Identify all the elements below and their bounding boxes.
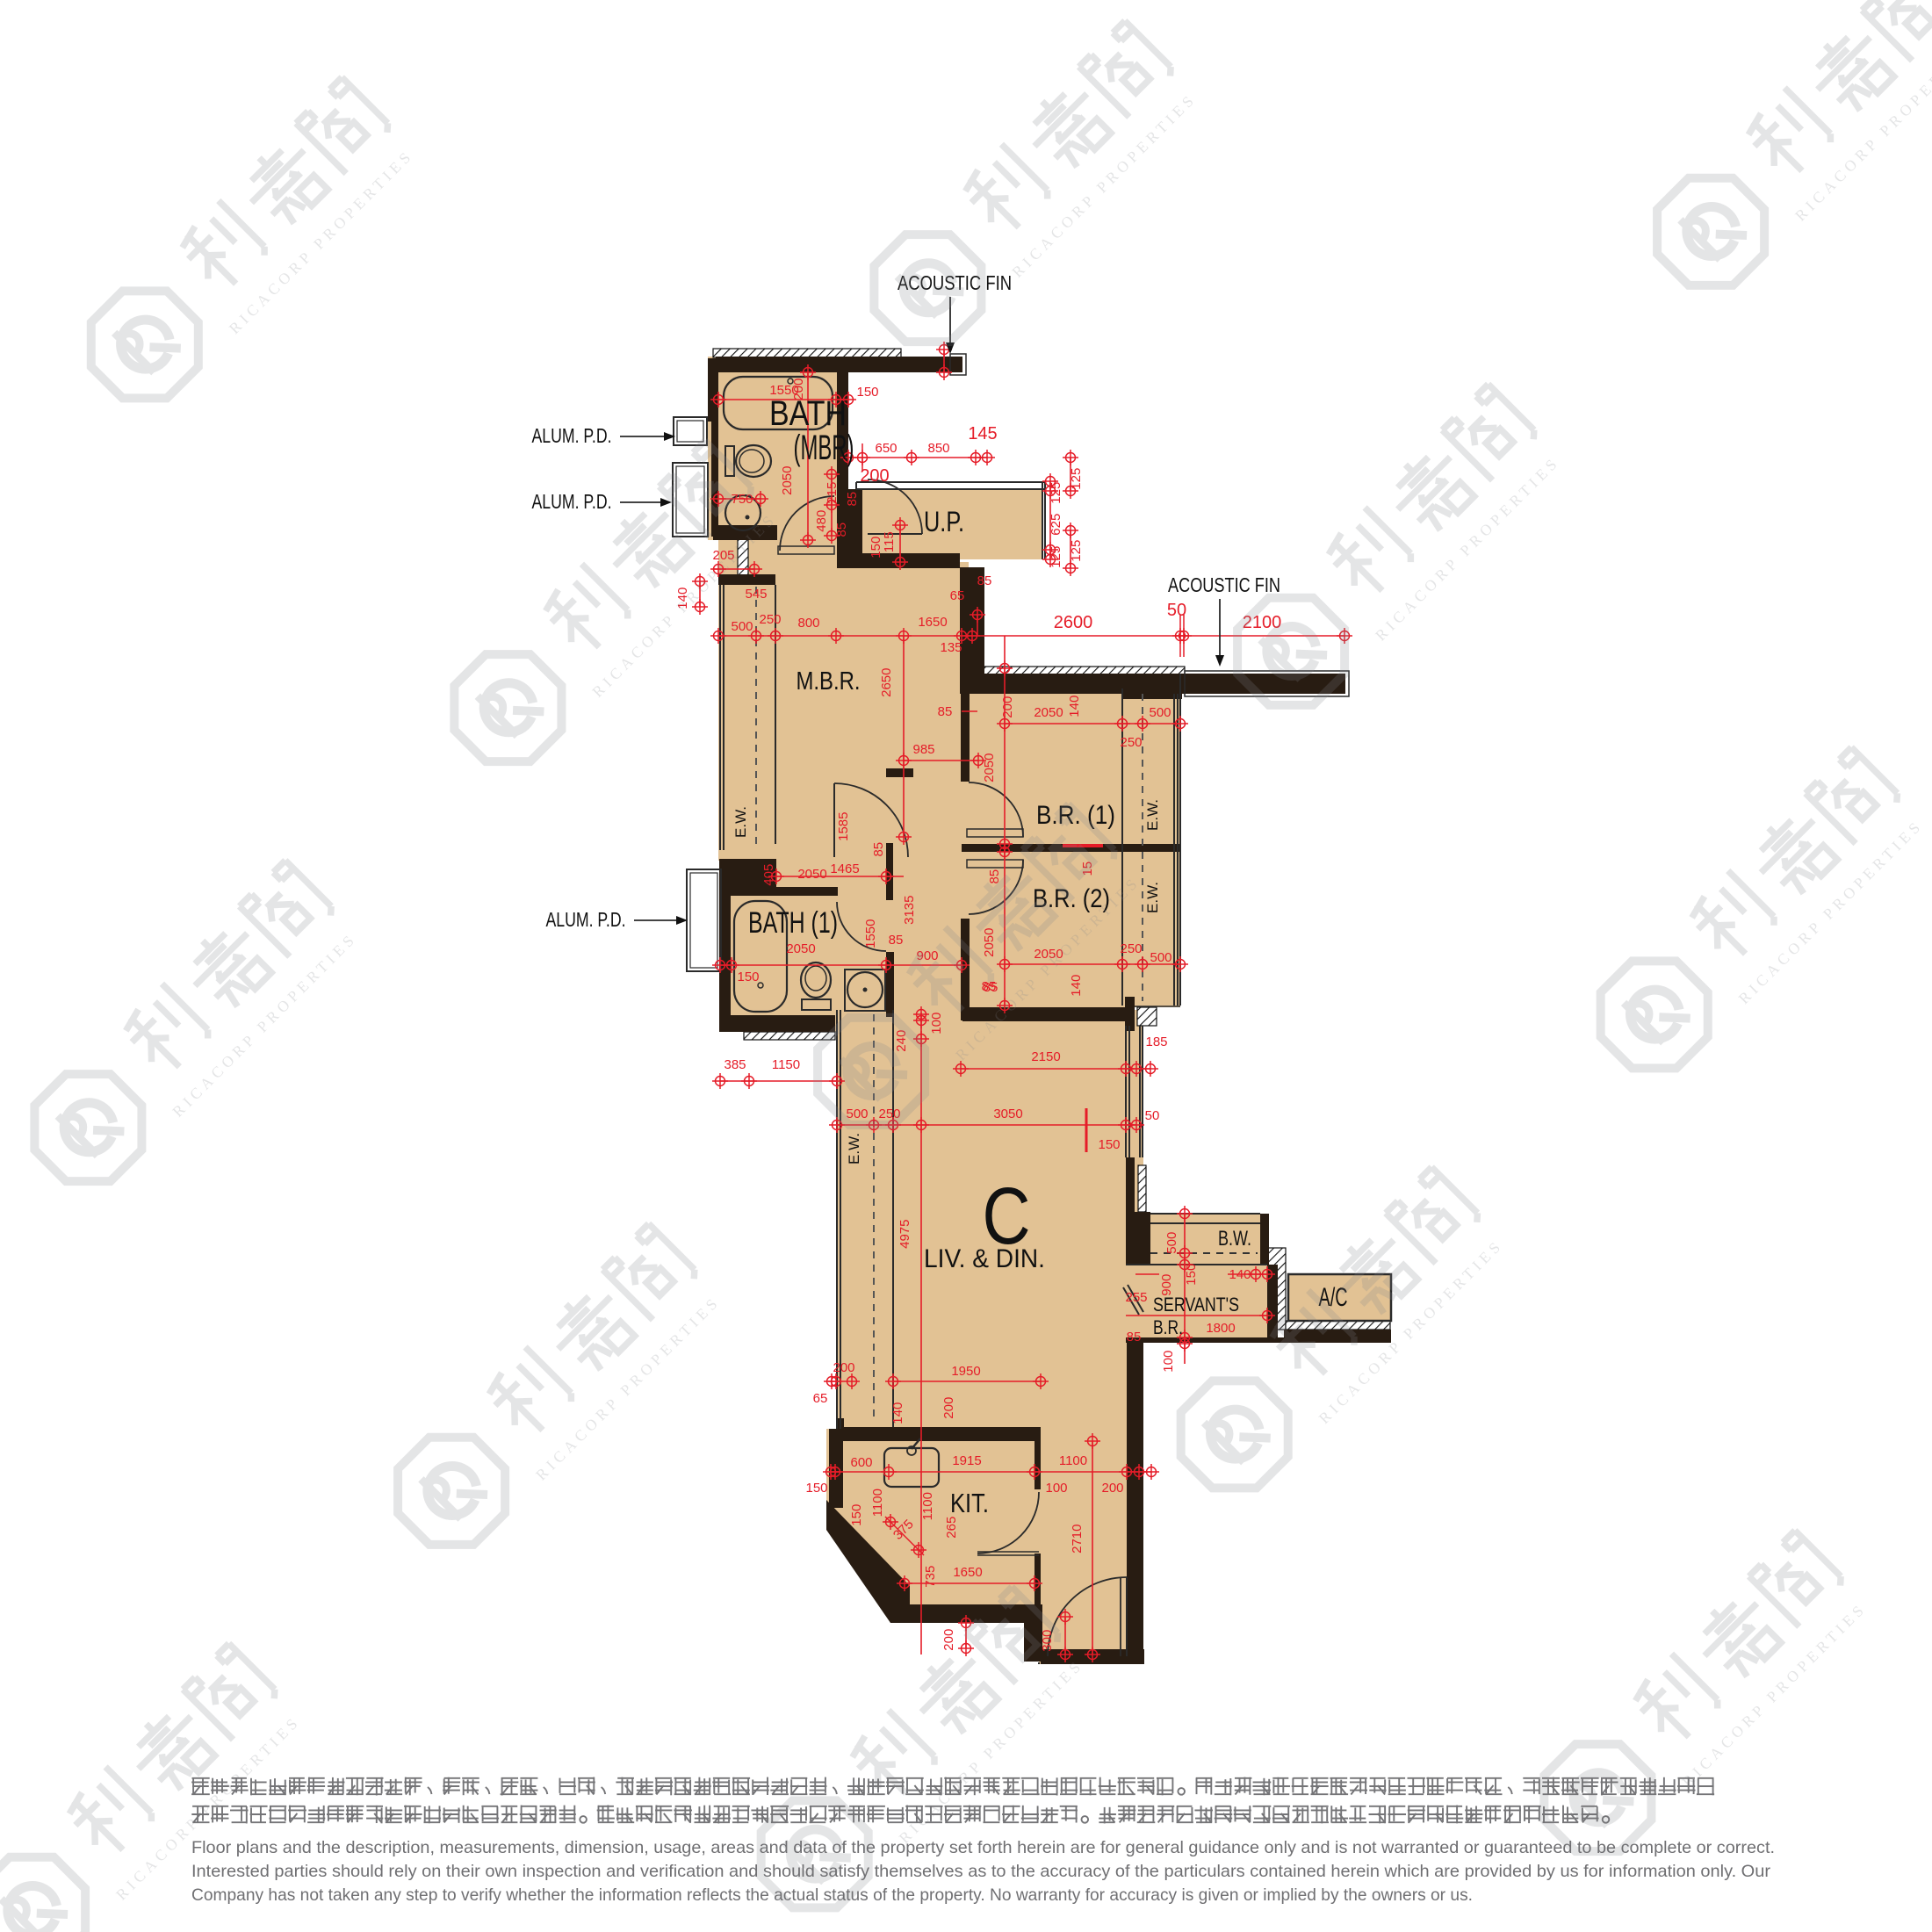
svg-text:850: 850 <box>927 441 949 456</box>
svg-text:125: 125 <box>1049 546 1063 568</box>
svg-text:LIV. & DIN.: LIV. & DIN. <box>924 1244 1045 1273</box>
svg-text:115: 115 <box>882 531 897 552</box>
svg-text:BATH (1): BATH (1) <box>748 906 838 940</box>
svg-text:625: 625 <box>1049 514 1063 536</box>
svg-text:200: 200 <box>941 1397 956 1419</box>
svg-text:250: 250 <box>1120 941 1142 956</box>
svg-text:Interested parties should rely: Interested parties should rely on their … <box>191 1862 1771 1881</box>
svg-text:600: 600 <box>850 1455 872 1470</box>
svg-text:2050: 2050 <box>982 753 997 782</box>
svg-text:300: 300 <box>1040 1630 1055 1652</box>
svg-text:4975: 4975 <box>898 1220 912 1249</box>
svg-text:150: 150 <box>849 1504 864 1526</box>
svg-text:150: 150 <box>1184 1264 1199 1286</box>
svg-text:B.R.: B.R. <box>1153 1316 1183 1338</box>
svg-text:85: 85 <box>938 704 953 719</box>
svg-text:125: 125 <box>1069 468 1084 490</box>
svg-text:ALUM. P.D.: ALUM. P.D. <box>532 424 612 447</box>
svg-text:1100: 1100 <box>920 1492 935 1520</box>
svg-text:Floor plans and the descriptio: Floor plans and the description, measure… <box>191 1838 1775 1857</box>
svg-text:150: 150 <box>805 1481 827 1496</box>
svg-text:2050: 2050 <box>982 928 997 957</box>
svg-text:2050: 2050 <box>1034 705 1063 720</box>
svg-text:140: 140 <box>1069 975 1084 997</box>
svg-text:500: 500 <box>1149 705 1171 720</box>
svg-text:125: 125 <box>1049 482 1063 504</box>
svg-text:50: 50 <box>1145 1108 1160 1123</box>
svg-text:1585: 1585 <box>836 812 851 841</box>
svg-text:145: 145 <box>968 424 997 443</box>
svg-text:BATH: BATH <box>769 394 847 433</box>
svg-text:2600: 2600 <box>1054 613 1093 632</box>
svg-text:2050: 2050 <box>797 867 826 882</box>
svg-text:135: 135 <box>940 640 962 655</box>
svg-text:E.W.: E.W. <box>1144 882 1161 913</box>
svg-text:2050: 2050 <box>780 466 795 495</box>
svg-text:M.B.R.: M.B.R. <box>797 667 861 696</box>
svg-text:85: 85 <box>889 933 904 948</box>
svg-text:480: 480 <box>814 510 829 532</box>
svg-text:1650: 1650 <box>918 615 947 630</box>
svg-text:3050: 3050 <box>993 1107 1022 1121</box>
svg-text:900: 900 <box>1159 1274 1174 1296</box>
svg-text:1465: 1465 <box>830 861 859 876</box>
svg-text:1100: 1100 <box>1059 1453 1087 1468</box>
svg-text:65: 65 <box>813 1391 828 1406</box>
svg-text:SERVANT'S: SERVANT'S <box>1153 1294 1239 1316</box>
svg-text:E.W.: E.W. <box>1144 799 1161 831</box>
svg-text:1915: 1915 <box>952 1453 981 1468</box>
svg-text:3135: 3135 <box>902 896 917 925</box>
svg-text:150: 150 <box>1098 1137 1120 1152</box>
svg-text:KIT.: KIT. <box>950 1488 989 1518</box>
svg-text:200: 200 <box>1101 1481 1123 1496</box>
svg-text:85: 85 <box>977 573 992 588</box>
svg-text:ALUM. P.D.: ALUM. P.D. <box>546 908 626 931</box>
svg-text:1800: 1800 <box>1206 1321 1235 1336</box>
svg-text:200: 200 <box>860 466 889 486</box>
svg-text:385: 385 <box>724 1057 746 1072</box>
svg-text:140: 140 <box>1067 696 1082 717</box>
svg-text:1550: 1550 <box>863 919 878 948</box>
svg-text:ACOUSTIC FIN: ACOUSTIC FIN <box>1168 573 1280 596</box>
svg-text:125: 125 <box>1069 540 1084 562</box>
svg-text:250: 250 <box>1120 735 1142 750</box>
svg-text:500: 500 <box>1150 950 1171 965</box>
svg-text:85: 85 <box>871 842 886 857</box>
svg-text:200: 200 <box>941 1629 956 1651</box>
svg-text:500: 500 <box>731 619 753 634</box>
svg-text:2050: 2050 <box>786 941 815 956</box>
svg-text:255: 255 <box>1125 1290 1147 1305</box>
svg-text:100: 100 <box>929 1013 944 1034</box>
svg-text:2650: 2650 <box>879 668 894 697</box>
svg-text:(MBR): (MBR) <box>794 429 854 467</box>
svg-text:100: 100 <box>1045 1481 1067 1496</box>
svg-text:650: 650 <box>875 441 897 456</box>
svg-text:250: 250 <box>759 612 781 627</box>
svg-text:1950: 1950 <box>951 1364 980 1379</box>
svg-text:U.P.: U.P. <box>924 506 964 537</box>
svg-text:ALUM. P.D.: ALUM. P.D. <box>532 490 612 513</box>
svg-text:1150: 1150 <box>772 1057 800 1072</box>
svg-text:200: 200 <box>833 1360 854 1375</box>
svg-text:E.W.: E.W. <box>846 1133 862 1164</box>
svg-text:85: 85 <box>1127 1330 1142 1344</box>
svg-text:B.W.: B.W. <box>1218 1227 1251 1251</box>
svg-text:735: 735 <box>923 1566 938 1588</box>
svg-text:985: 985 <box>912 742 934 757</box>
svg-text:100: 100 <box>1161 1351 1176 1373</box>
svg-text:2150: 2150 <box>1031 1049 1060 1064</box>
svg-text:E.W.: E.W. <box>732 806 749 838</box>
svg-text:150: 150 <box>737 970 759 984</box>
svg-text:200: 200 <box>1000 696 1015 718</box>
svg-text:150: 150 <box>856 385 878 400</box>
svg-text:185: 185 <box>1145 1034 1167 1049</box>
svg-text:140: 140 <box>890 1402 905 1424</box>
svg-text:800: 800 <box>797 616 819 631</box>
svg-text:405: 405 <box>761 864 776 886</box>
svg-text:545: 545 <box>745 587 767 602</box>
svg-text:1650: 1650 <box>953 1565 982 1580</box>
svg-text:85: 85 <box>845 492 860 507</box>
svg-text:265: 265 <box>944 1517 959 1539</box>
svg-text:1100: 1100 <box>870 1489 885 1517</box>
svg-text:65: 65 <box>950 588 965 603</box>
svg-text:Company has not taken any step: Company has not taken any step to verify… <box>191 1885 1473 1905</box>
svg-text:2710: 2710 <box>1070 1525 1085 1554</box>
svg-text:500: 500 <box>1164 1232 1179 1254</box>
